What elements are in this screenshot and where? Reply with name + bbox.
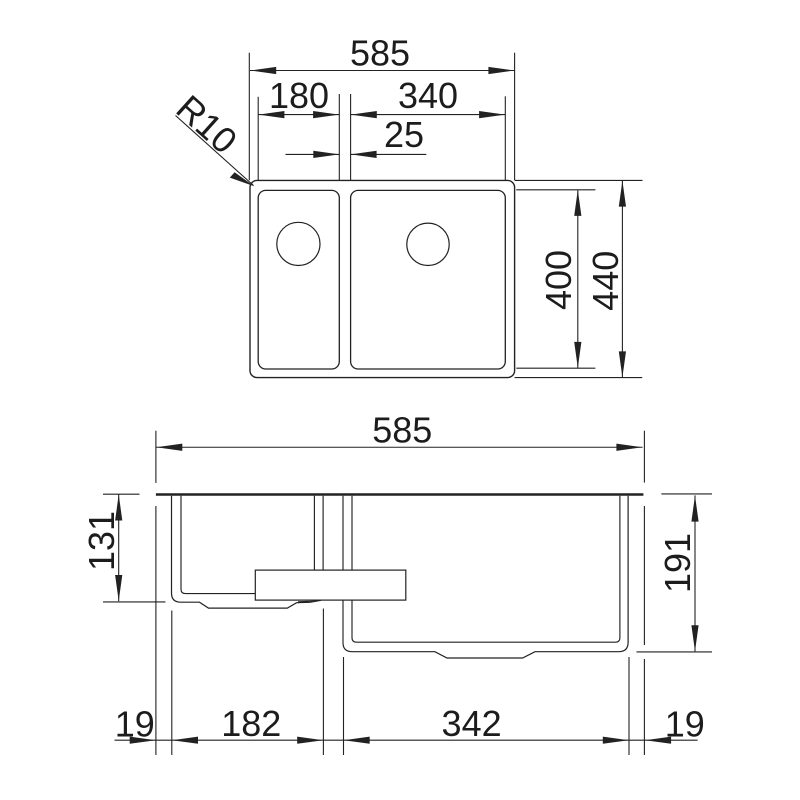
svg-text:191: 191 [657, 533, 698, 593]
svg-text:R10: R10 [169, 87, 246, 162]
svg-text:19: 19 [665, 703, 705, 744]
svg-text:180: 180 [269, 75, 329, 116]
svg-text:585: 585 [372, 410, 432, 451]
svg-text:440: 440 [585, 251, 626, 311]
svg-text:182: 182 [221, 703, 281, 744]
svg-text:342: 342 [442, 703, 502, 744]
svg-text:131: 131 [81, 511, 122, 571]
svg-text:340: 340 [398, 75, 458, 116]
svg-text:19: 19 [115, 704, 155, 745]
svg-text:400: 400 [538, 250, 579, 310]
svg-text:585: 585 [350, 32, 410, 73]
svg-text:25: 25 [384, 114, 424, 155]
